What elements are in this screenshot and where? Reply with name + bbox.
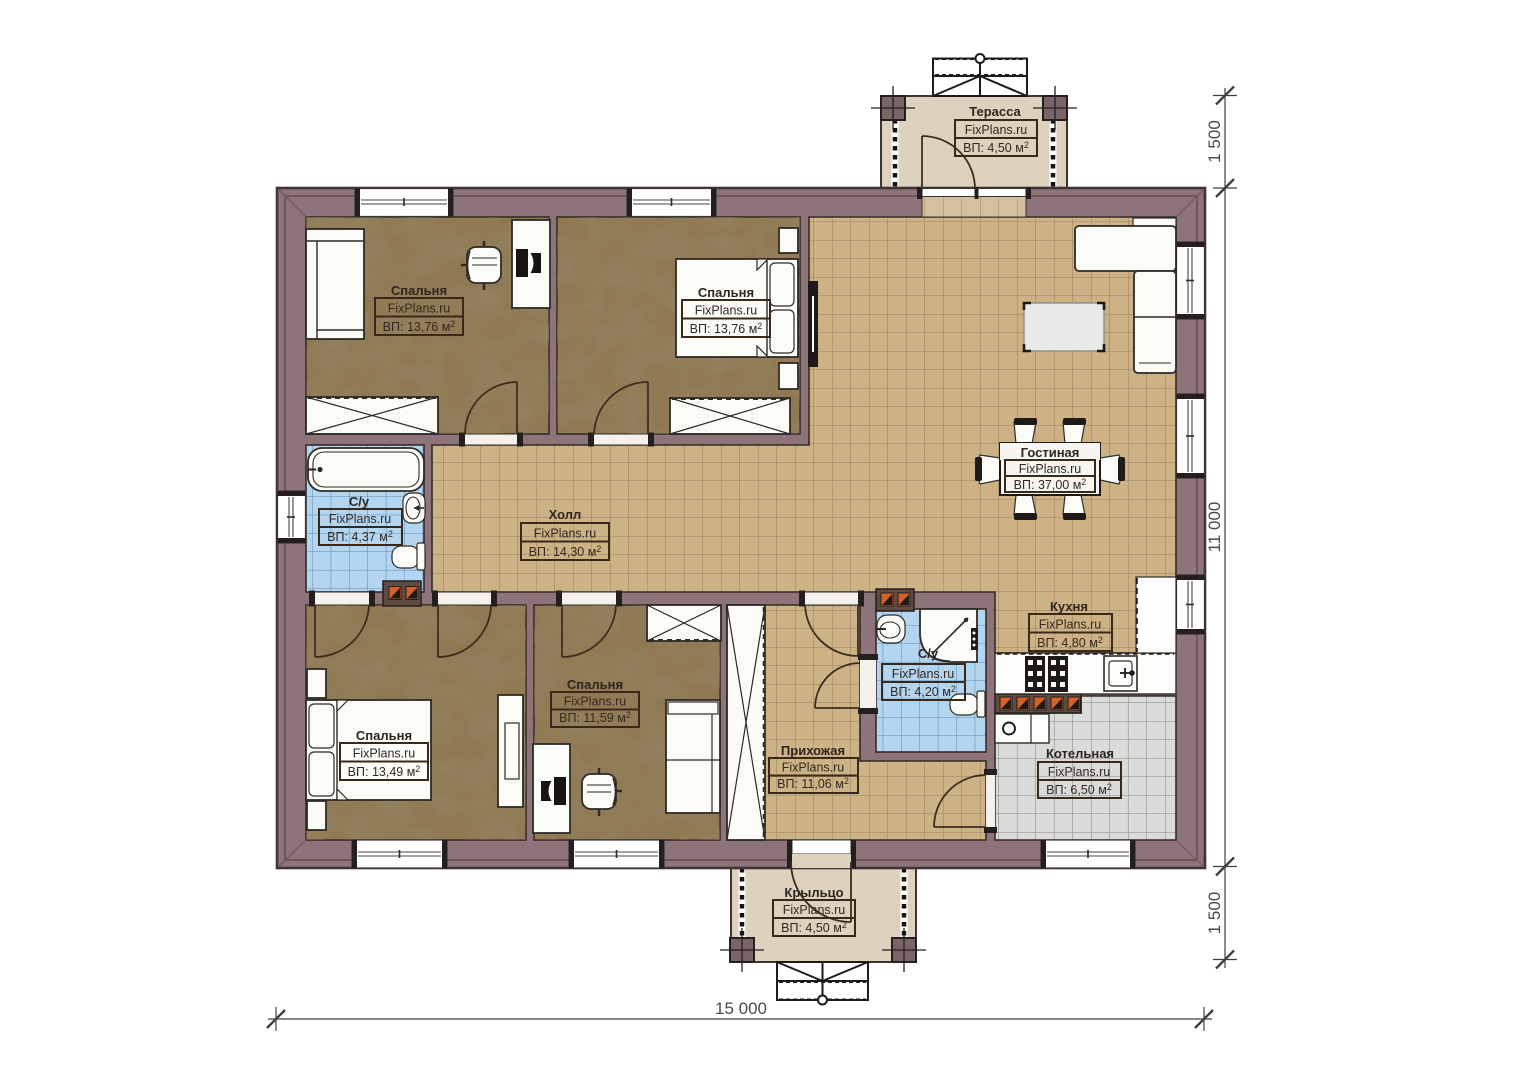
svg-text:FixPlans.ru: FixPlans.ru — [388, 302, 451, 316]
svg-text:FixPlans.ru: FixPlans.ru — [564, 695, 627, 709]
svg-text:Гостиная: Гостиная — [1021, 445, 1080, 460]
svg-text:Прихожая: Прихожая — [781, 743, 845, 758]
svg-text:Холл: Холл — [549, 507, 582, 522]
svg-text:FixPlans.ru: FixPlans.ru — [353, 747, 416, 761]
svg-text:С/у: С/у — [349, 494, 370, 509]
svg-text:ВП: 13,76 м2: ВП: 13,76 м2 — [383, 319, 456, 334]
svg-text:Кухня: Кухня — [1050, 599, 1088, 614]
svg-text:ВП: 4,37 м2: ВП: 4,37 м2 — [327, 529, 393, 544]
svg-text:FixPlans.ru: FixPlans.ru — [1048, 765, 1111, 779]
svg-text:15 000: 15 000 — [715, 999, 767, 1018]
svg-text:FixPlans.ru: FixPlans.ru — [534, 527, 597, 541]
svg-text:Терасса: Терасса — [969, 104, 1021, 119]
svg-text:ВП: 13,76 м2: ВП: 13,76 м2 — [690, 321, 763, 336]
svg-text:Спальня: Спальня — [356, 728, 412, 743]
svg-text:11 000: 11 000 — [1205, 502, 1224, 553]
svg-text:ВП: 4,50 м2: ВП: 4,50 м2 — [781, 920, 847, 935]
svg-text:FixPlans.ru: FixPlans.ru — [1019, 462, 1082, 476]
svg-text:Спальня: Спальня — [391, 283, 447, 298]
svg-text:Спальня: Спальня — [567, 677, 623, 692]
svg-text:FixPlans.ru: FixPlans.ru — [965, 123, 1028, 137]
svg-text:ВП: 37,00 м2: ВП: 37,00 м2 — [1014, 477, 1087, 492]
svg-text:ВП: 4,80 м2: ВП: 4,80 м2 — [1037, 635, 1103, 650]
svg-text:FixPlans.ru: FixPlans.ru — [329, 512, 392, 526]
svg-text:Котельная: Котельная — [1046, 746, 1114, 761]
svg-text:FixPlans.ru: FixPlans.ru — [782, 761, 845, 775]
svg-text:ВП: 4,50 м2: ВП: 4,50 м2 — [963, 140, 1029, 155]
svg-text:ВП: 11,06 м2: ВП: 11,06 м2 — [777, 776, 849, 791]
svg-text:1 500: 1 500 — [1205, 892, 1224, 935]
svg-text:ВП: 14,30 м2: ВП: 14,30 м2 — [529, 544, 602, 559]
svg-text:FixPlans.ru: FixPlans.ru — [892, 667, 955, 681]
svg-text:Спальня: Спальня — [698, 285, 754, 300]
svg-text:FixPlans.ru: FixPlans.ru — [1039, 618, 1102, 632]
svg-text:1 500: 1 500 — [1205, 120, 1224, 163]
svg-text:С/у: С/у — [918, 646, 939, 661]
svg-text:ВП: 11,59 м2: ВП: 11,59 м2 — [559, 710, 631, 725]
svg-text:Крыльцо: Крыльцо — [784, 885, 843, 900]
svg-text:ВП: 6,50 м2: ВП: 6,50 м2 — [1046, 782, 1112, 797]
svg-text:ВП: 13,49 м2: ВП: 13,49 м2 — [348, 764, 421, 779]
svg-text:ВП: 4,20 м2: ВП: 4,20 м2 — [890, 684, 956, 699]
svg-text:FixPlans.ru: FixPlans.ru — [695, 304, 758, 318]
svg-text:FixPlans.ru: FixPlans.ru — [783, 903, 846, 917]
